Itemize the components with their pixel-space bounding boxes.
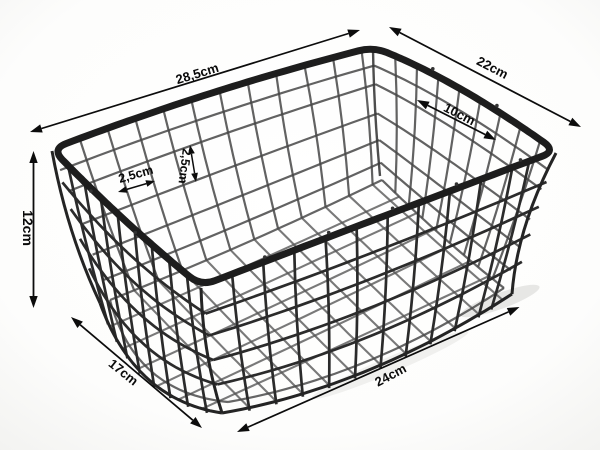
svg-text:12cm: 12cm	[20, 210, 36, 246]
